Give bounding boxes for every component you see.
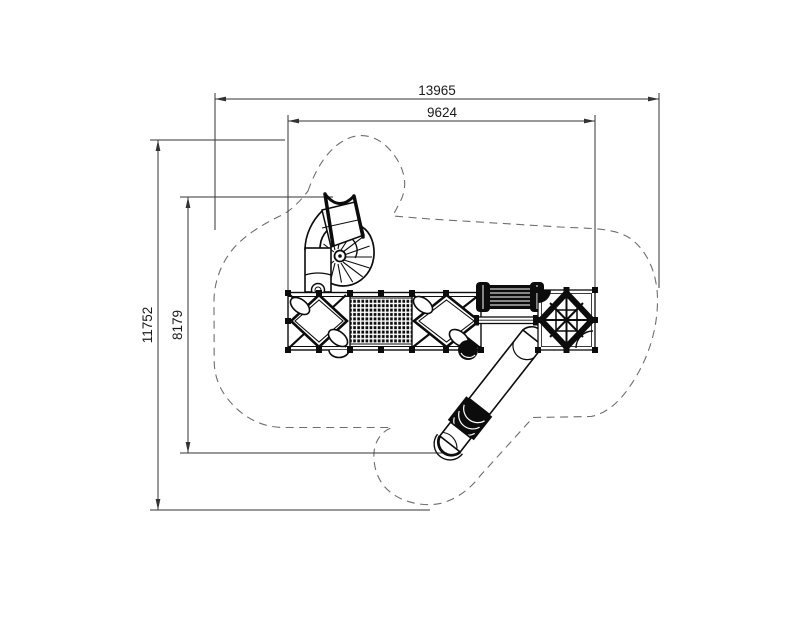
spiral-slide — [305, 194, 374, 297]
spiral-hub-pin — [338, 254, 342, 258]
tube-left-curve — [305, 211, 322, 250]
crawl-tube-bridge — [476, 282, 544, 312]
dimension-label-total-height: 11752 — [140, 307, 155, 344]
arrowhead-left — [215, 97, 226, 102]
plan-drawing: 13965 9624 11752 8179 — [0, 0, 800, 618]
arrowhead-right — [584, 119, 595, 124]
platform-d — [535, 287, 598, 353]
beam-cap-left — [474, 315, 479, 326]
arrowhead-top — [186, 197, 191, 208]
arrowhead-bottom — [156, 499, 161, 510]
chute-flare-rim — [325, 194, 354, 204]
deck-step-bump — [329, 350, 349, 358]
drawing-page: 13965 9624 11752 8179 — [0, 0, 800, 618]
deck-row — [285, 290, 484, 360]
dimension-label-total-width: 13965 — [418, 83, 456, 98]
balance-beam — [474, 315, 538, 326]
arrowhead-right — [648, 97, 659, 102]
arrowhead-top — [156, 140, 161, 151]
arrowhead-bottom — [186, 442, 191, 453]
dimension-label-inner-height: 8179 — [170, 310, 185, 340]
mesh-climb-panel — [350, 298, 412, 344]
arrowhead-left — [288, 119, 299, 124]
dimension-label-inner-width: 9624 — [427, 105, 458, 120]
